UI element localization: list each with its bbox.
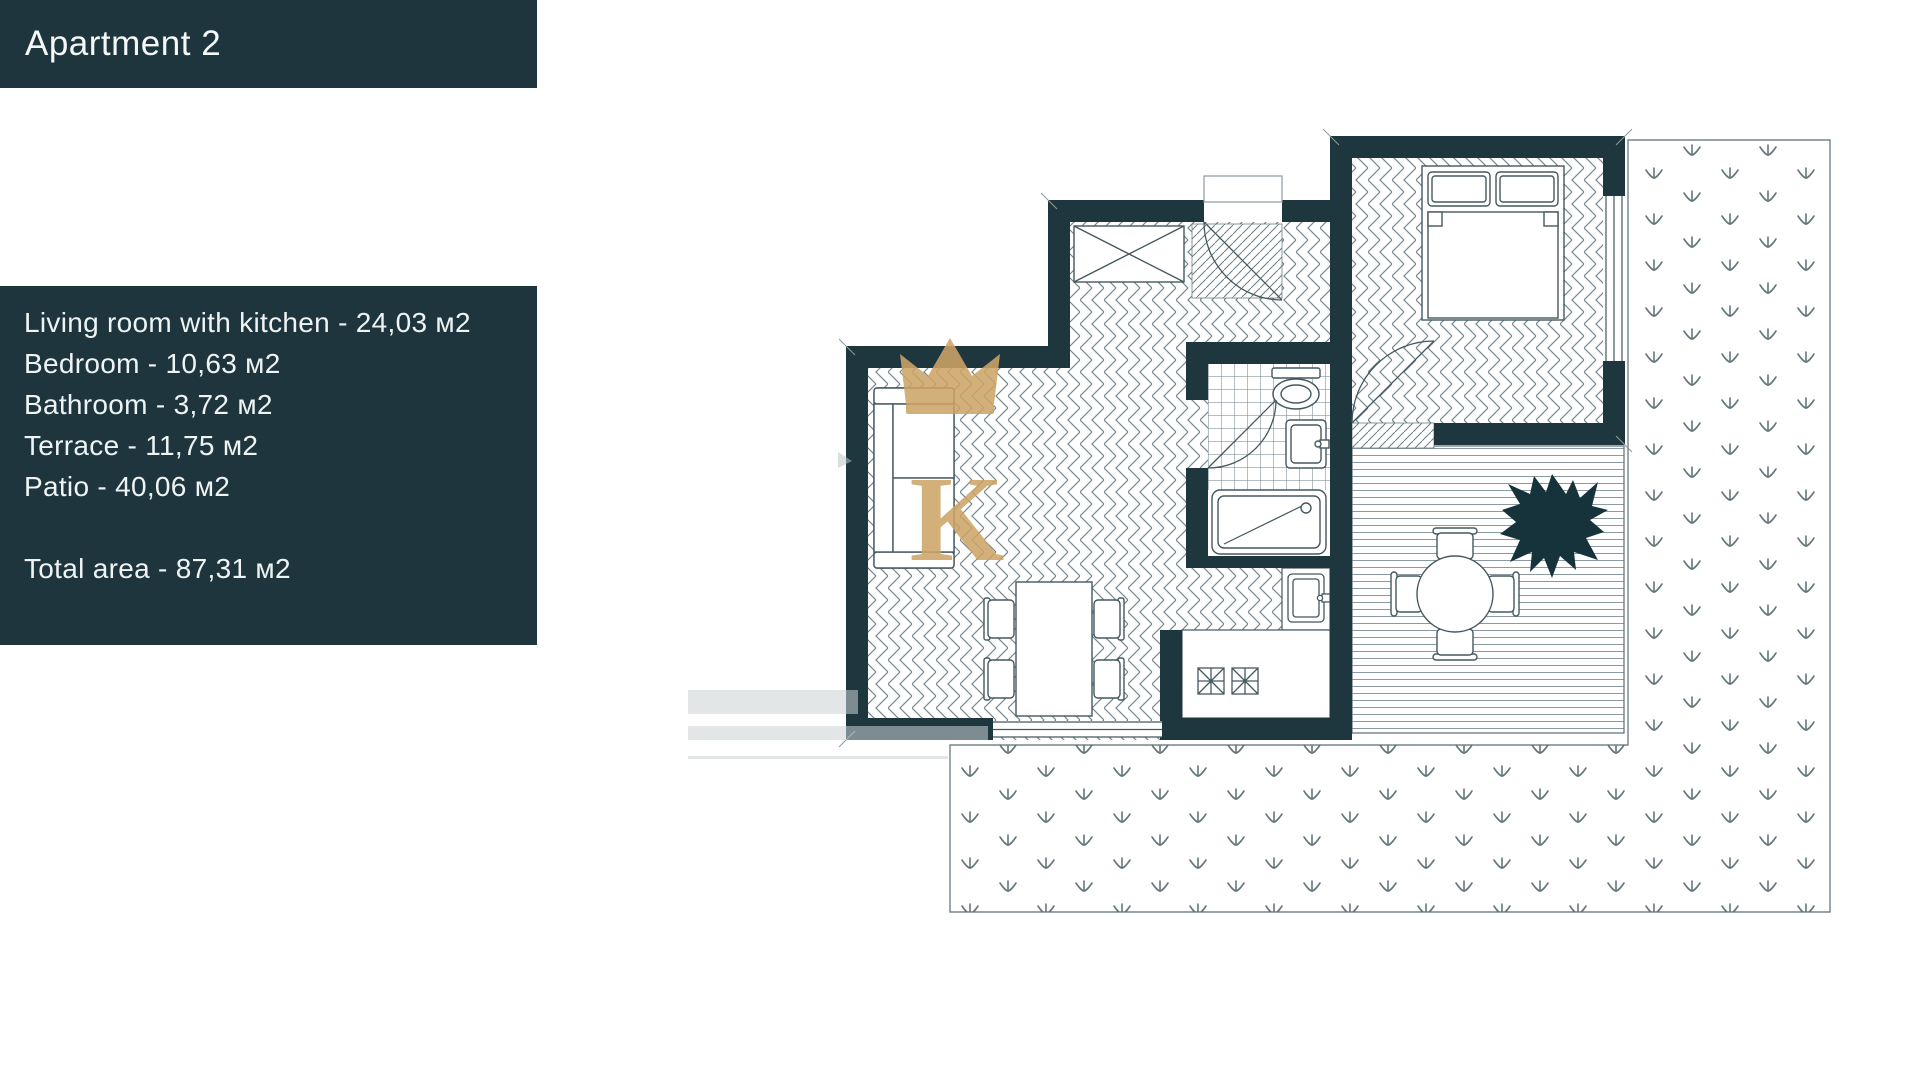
page-title: Apartment 2 [0, 24, 221, 64]
watermark-letter: K [910, 452, 1005, 587]
bathtub-icon [1212, 490, 1326, 554]
info-panel: Living room with kitchen - 24,03 м2 Bedr… [0, 286, 537, 645]
double-bed-icon [1422, 166, 1564, 320]
toilet-icon [1272, 368, 1320, 409]
dining-table-icon [1016, 582, 1092, 716]
header-panel: Apartment 2 [0, 0, 537, 88]
washbasin-icon [1286, 420, 1329, 468]
apartment-plan-page: K Apartment 2 Living room with kitchen -… [0, 0, 1920, 1080]
terrace-threshold [1352, 423, 1434, 448]
window-living [993, 721, 1162, 737]
room-area-patio: Patio - 40,06 м2 [24, 466, 537, 507]
room-area-living: Living room with kitchen - 24,03 м2 [24, 302, 537, 343]
kitchen-sink-icon [1288, 574, 1330, 622]
room-area-terrace: Terrace - 11,75 м2 [24, 425, 537, 466]
info-spacer [24, 507, 537, 548]
room-area-bathroom: Bathroom - 3,72 м2 [24, 384, 537, 425]
entry-step [1204, 176, 1282, 202]
bathroom [1208, 364, 1330, 556]
total-area: Total area - 87,31 м2 [24, 548, 537, 589]
window-bedroom [1605, 196, 1623, 361]
round-table-icon [1417, 556, 1493, 632]
room-area-bedroom: Bedroom - 10,63 м2 [24, 343, 537, 384]
wardrobe-icon [1074, 226, 1184, 282]
